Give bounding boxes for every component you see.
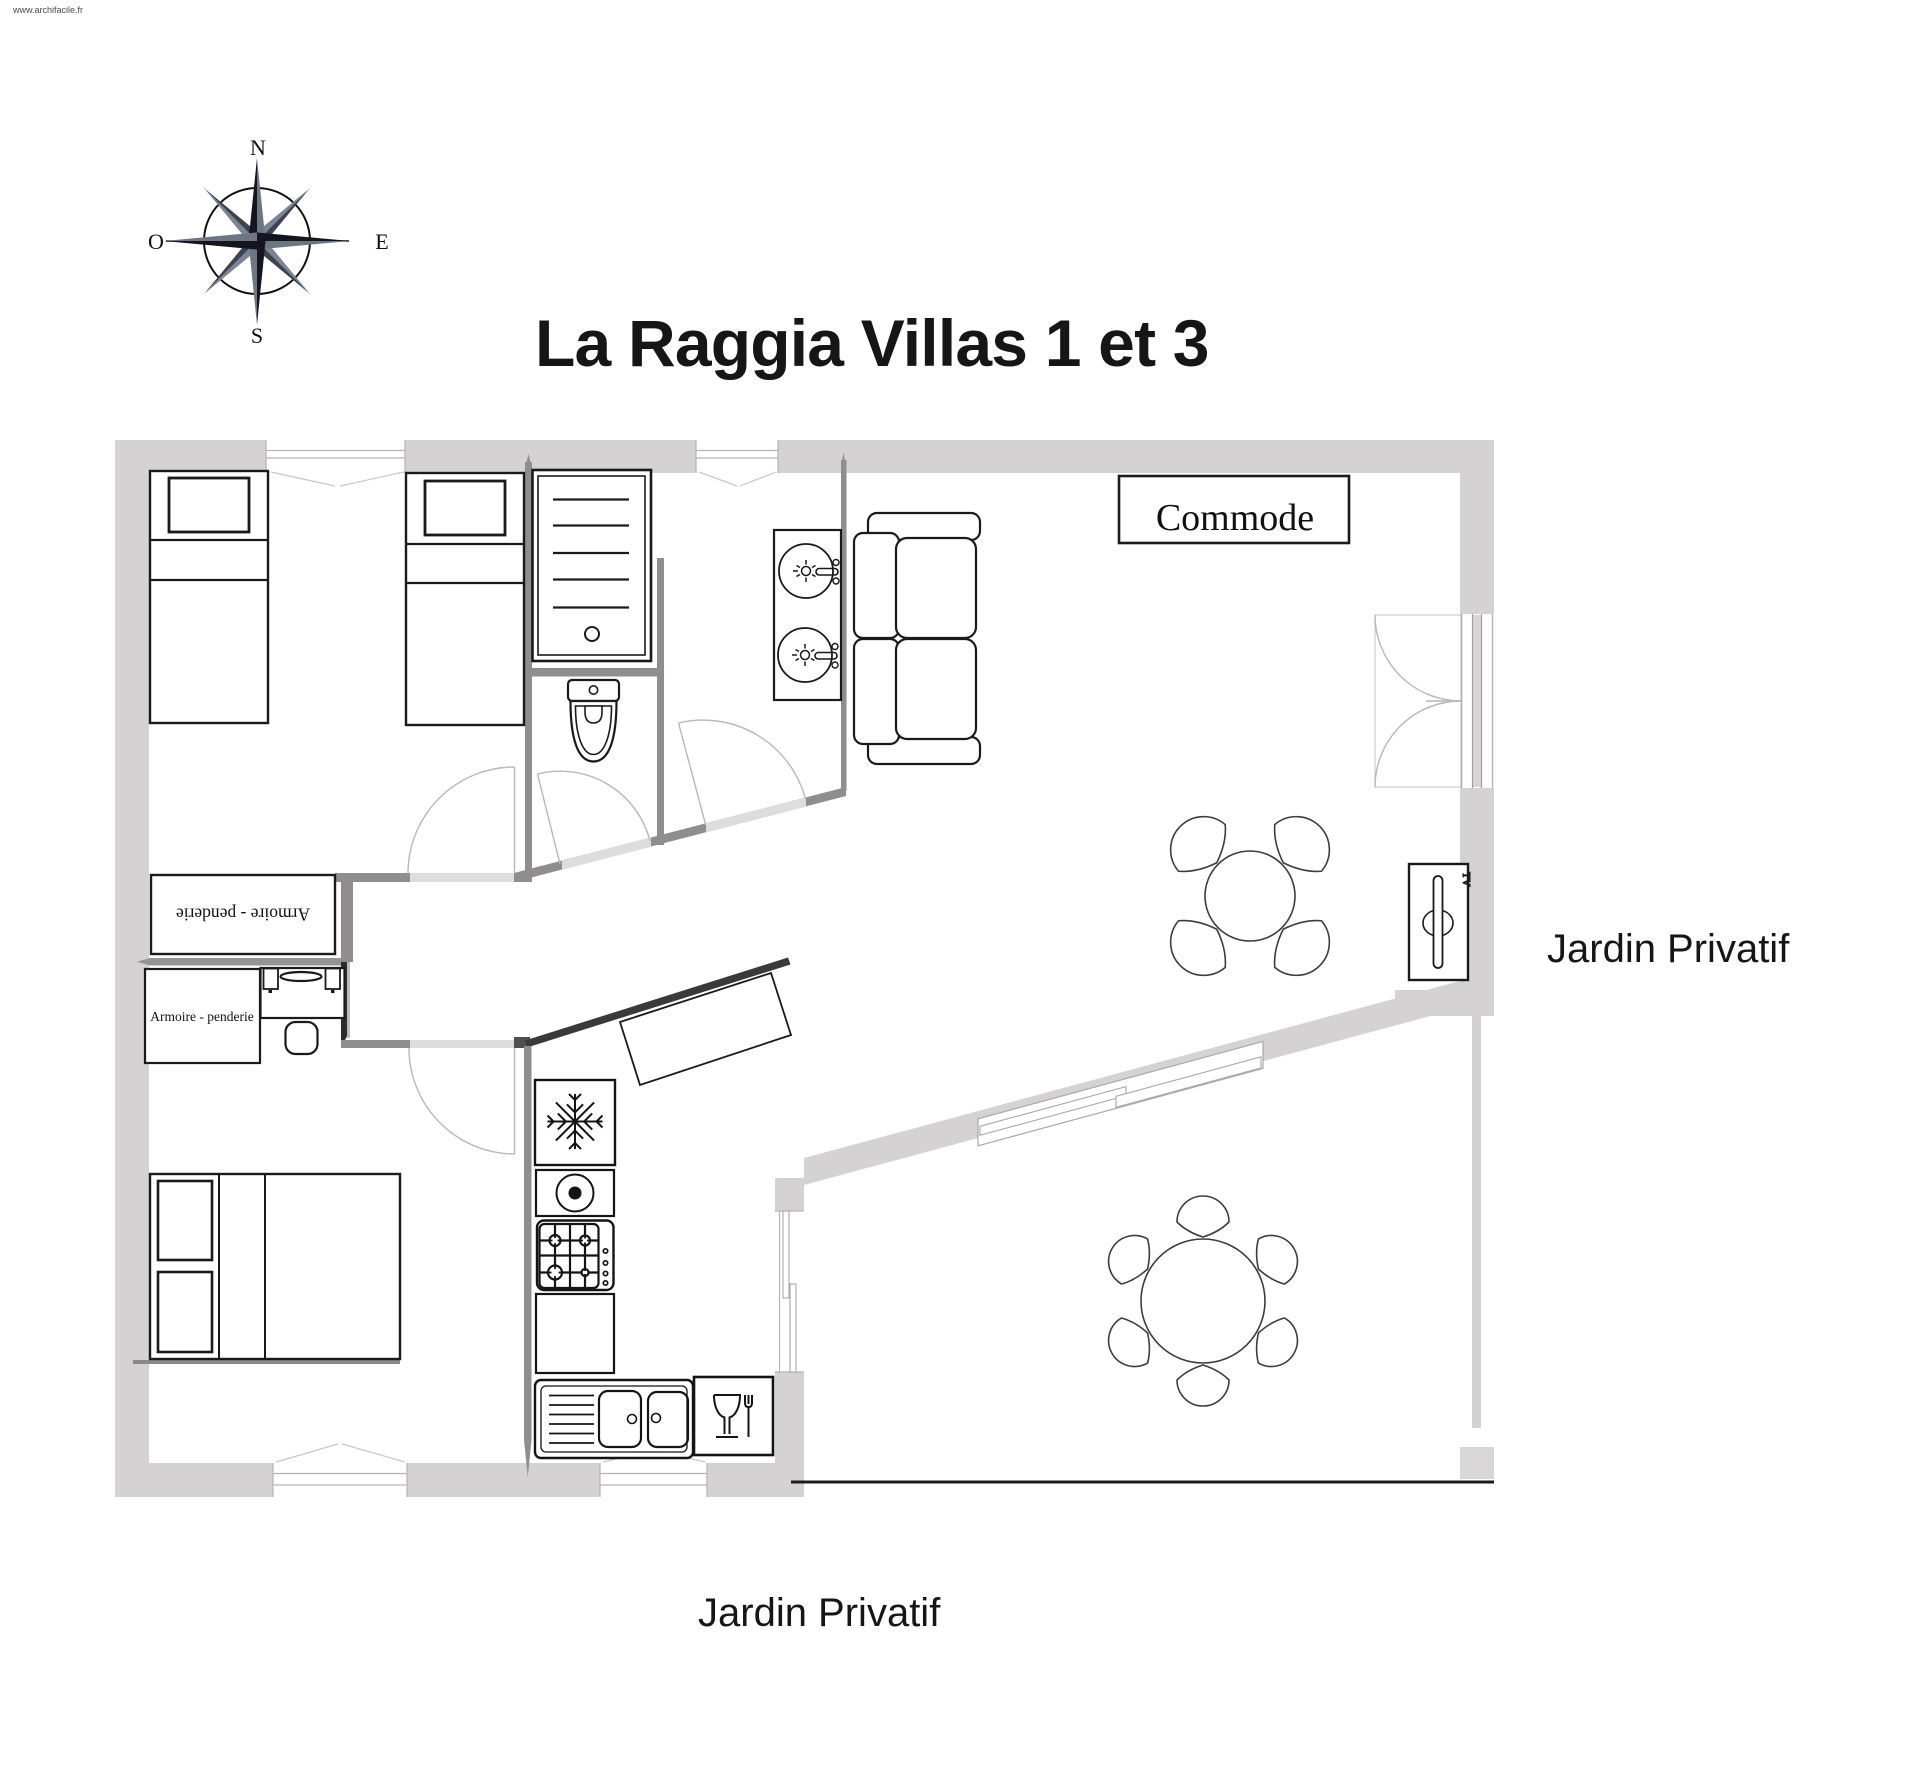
svg-text:S: S <box>251 323 263 348</box>
svg-text:N: N <box>250 135 266 160</box>
svg-text:www.archifacile.fr: www.archifacile.fr <box>12 5 83 15</box>
svg-text:Armoire - penderie: Armoire - penderie <box>176 905 310 925</box>
svg-text:O: O <box>148 229 164 254</box>
svg-text:TV: TV <box>1460 872 1472 887</box>
svg-text:Jardin Privatif: Jardin Privatif <box>698 1591 941 1635</box>
svg-text:La Raggia Villas 1 et 3: La Raggia Villas 1 et 3 <box>535 306 1209 380</box>
svg-text:Armoire - penderie: Armoire - penderie <box>150 1009 253 1024</box>
svg-text:Jardin Privatif: Jardin Privatif <box>1547 927 1790 971</box>
svg-text:Commode: Commode <box>1156 497 1314 539</box>
svg-text:E: E <box>375 229 388 254</box>
